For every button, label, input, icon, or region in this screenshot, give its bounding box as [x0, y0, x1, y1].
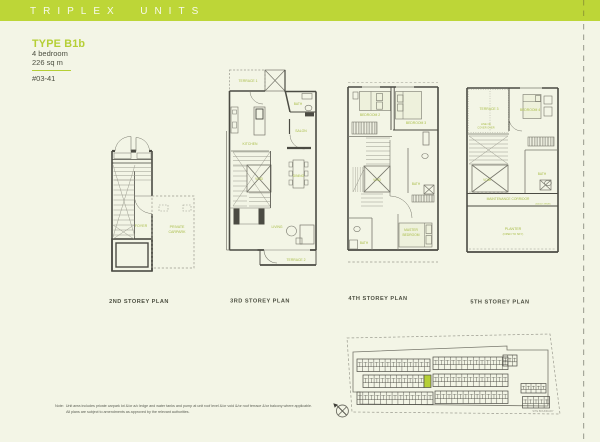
- svg-text:VOID: VOID: [483, 178, 491, 182]
- svg-text:PRIVATE: PRIVATE: [170, 225, 185, 229]
- svg-text:BATH: BATH: [294, 102, 303, 106]
- svg-text:VOID: VOID: [255, 177, 263, 181]
- svg-text:SITE BOUNDARY: SITE BOUNDARY: [532, 409, 553, 413]
- svg-text:BEDROOM 2: BEDROOM 2: [360, 113, 380, 117]
- svg-text:TERRACE 1: TERRACE 1: [238, 79, 257, 83]
- svg-text:FOYER: FOYER: [135, 224, 148, 228]
- svg-text:VOID: VOID: [373, 178, 381, 182]
- svg-text:2ND STOREY PLAN: 2ND STOREY PLAN: [109, 299, 169, 305]
- svg-text:KITCHEN: KITCHEN: [243, 142, 258, 146]
- svg-text:4TH STOREY PLAN: 4TH STOREY PLAN: [348, 296, 407, 302]
- svg-text:LIVING: LIVING: [271, 225, 282, 229]
- svg-text:(OPEN TO SKY): (OPEN TO SKY): [503, 232, 524, 236]
- svg-text:TERRACE 2: TERRACE 2: [286, 258, 305, 262]
- svg-text:(500mm WIDE): (500mm WIDE): [535, 204, 550, 206]
- svg-text:BEDROOM 3: BEDROOM 3: [406, 121, 426, 125]
- svg-text:COVER OVER: COVER OVER: [477, 126, 494, 130]
- svg-text:MAINTENANCE CORRIDOR: MAINTENANCE CORRIDOR: [487, 197, 530, 201]
- svg-text:BATH: BATH: [360, 241, 369, 245]
- svg-text:BATH: BATH: [538, 172, 547, 176]
- svg-text:DINING: DINING: [293, 174, 305, 178]
- svg-text:TERRACE 3: TERRACE 3: [479, 107, 498, 111]
- svg-text:3RD STOREY PLAN: 3RD STOREY PLAN: [230, 299, 290, 305]
- svg-text:CARPARK: CARPARK: [168, 230, 186, 234]
- svg-text:LINE OF: LINE OF: [481, 122, 492, 126]
- svg-text:5TH STOREY PLAN: 5TH STOREY PLAN: [470, 300, 529, 306]
- svg-text:BEDROOM: BEDROOM: [402, 233, 419, 237]
- svg-text:BATH: BATH: [412, 182, 421, 186]
- svg-text:SALON: SALON: [295, 129, 307, 133]
- svg-text:PLANTER: PLANTER: [505, 227, 522, 231]
- svg-text:MASTER: MASTER: [404, 228, 418, 232]
- svg-text:BEDROOM 4: BEDROOM 4: [520, 108, 540, 112]
